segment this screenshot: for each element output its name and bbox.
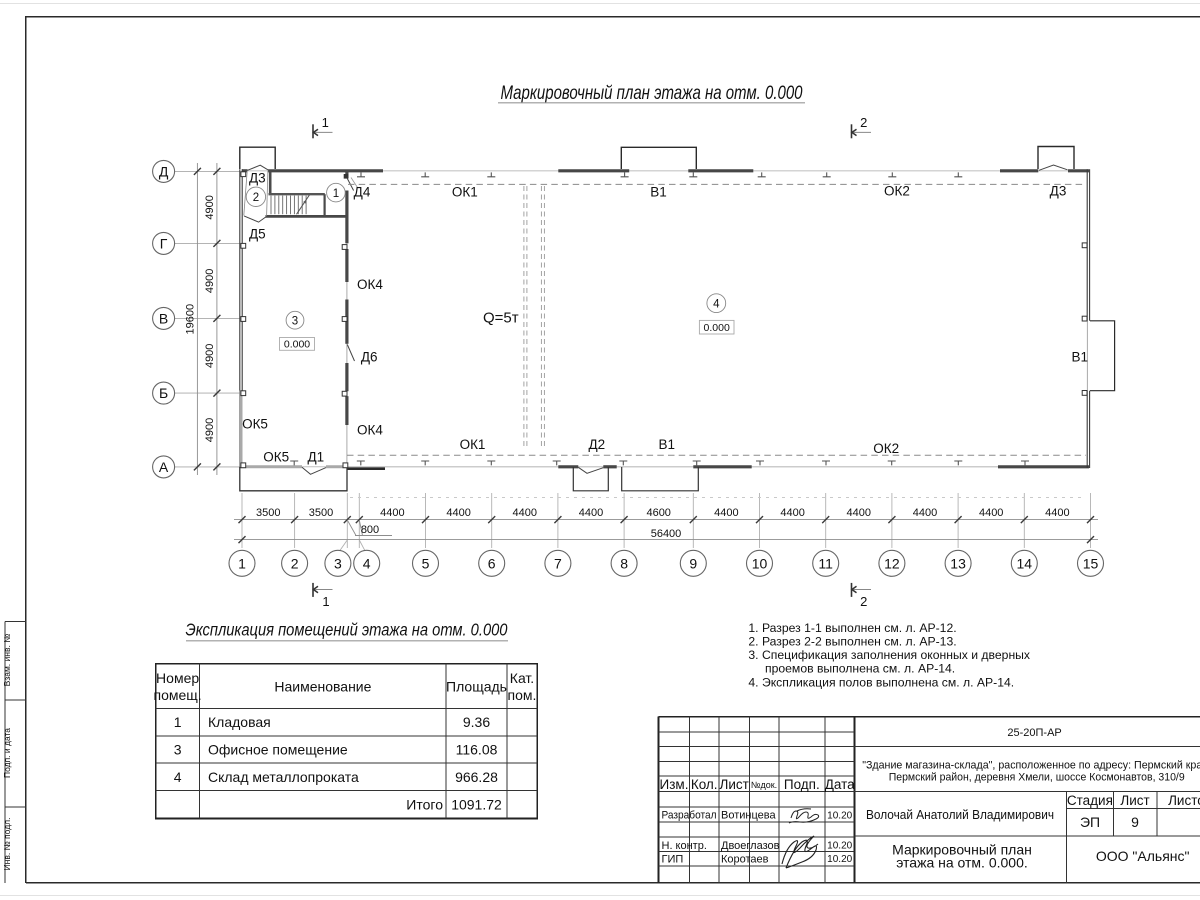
svg-text:1: 1 xyxy=(322,594,329,609)
svg-text:3: 3 xyxy=(174,741,182,757)
svg-text:В1: В1 xyxy=(659,437,676,452)
svg-text:966.28: 966.28 xyxy=(455,769,498,785)
svg-text:проемов выполнена см. л. АР-14: проемов выполнена см. л. АР-14. xyxy=(765,662,955,676)
svg-text:9.36: 9.36 xyxy=(463,714,490,730)
svg-text:6: 6 xyxy=(488,555,496,571)
svg-text:Кол.: Кол. xyxy=(691,777,718,792)
svg-text:2: 2 xyxy=(860,594,867,609)
svg-text:3: 3 xyxy=(292,315,298,327)
svg-text:Н. контр.: Н. контр. xyxy=(662,840,707,852)
svg-text:3500: 3500 xyxy=(256,507,280,519)
svg-text:4: 4 xyxy=(713,298,720,310)
svg-text:Листов: Листов xyxy=(1168,793,1200,808)
svg-text:8: 8 xyxy=(620,555,628,571)
svg-text:2: 2 xyxy=(860,115,867,130)
svg-text:Итого: Итого xyxy=(406,796,443,812)
svg-text:4900: 4900 xyxy=(204,344,216,368)
svg-text:9: 9 xyxy=(1131,814,1139,830)
svg-text:Б: Б xyxy=(159,385,168,401)
svg-text:116.08: 116.08 xyxy=(456,741,498,757)
svg-text:4400: 4400 xyxy=(513,507,537,519)
svg-text:Д1: Д1 xyxy=(307,450,324,465)
svg-text:1: 1 xyxy=(238,555,246,571)
svg-text:9: 9 xyxy=(689,555,697,571)
svg-text:13: 13 xyxy=(950,555,966,571)
svg-text:Номер: Номер xyxy=(156,670,199,686)
svg-text:В1: В1 xyxy=(650,185,667,200)
svg-text:4400: 4400 xyxy=(979,507,1003,519)
svg-text:ОК1: ОК1 xyxy=(460,437,486,452)
svg-text:Д2: Д2 xyxy=(588,437,605,452)
svg-text:ОК4: ОК4 xyxy=(357,277,383,292)
svg-text:2: 2 xyxy=(291,555,299,571)
svg-text:Кладовая: Кладовая xyxy=(208,714,271,730)
svg-text:4900: 4900 xyxy=(204,418,216,442)
svg-text:14: 14 xyxy=(1017,555,1033,571)
svg-text:4600: 4600 xyxy=(646,507,670,519)
svg-text:ООО "Альянс": ООО "Альянс" xyxy=(1096,848,1190,864)
svg-text:1: 1 xyxy=(174,714,182,730)
svg-text:Инв. № подл.: Инв. № подл. xyxy=(2,818,12,871)
svg-text:ОК5: ОК5 xyxy=(263,450,289,465)
svg-text:3500: 3500 xyxy=(309,507,333,519)
svg-text:этажа на отм. 0.000.: этажа на отм. 0.000. xyxy=(896,854,1028,870)
svg-text:Д3: Д3 xyxy=(249,170,266,185)
svg-text:1091.72: 1091.72 xyxy=(451,796,502,812)
svg-text:12: 12 xyxy=(884,555,900,571)
svg-text:Пермский район, деревня Хмели,: Пермский район, деревня Хмели, шоссе Кос… xyxy=(889,772,1185,784)
svg-text:10.20: 10.20 xyxy=(827,841,852,852)
svg-text:Д: Д xyxy=(159,163,169,179)
svg-text:А: А xyxy=(159,459,169,475)
svg-text:Склад металлопроката: Склад металлопроката xyxy=(208,769,359,785)
svg-text:Подп.: Подп. xyxy=(784,777,820,792)
svg-text:4: 4 xyxy=(363,555,371,571)
svg-text:пом.: пом. xyxy=(508,687,537,703)
svg-text:Разработал: Разработал xyxy=(662,810,717,822)
svg-text:4400: 4400 xyxy=(446,507,470,519)
svg-text:ОК4: ОК4 xyxy=(357,423,383,438)
svg-text:4400: 4400 xyxy=(913,507,937,519)
svg-text:Волочай Анатолий Владимирович: Волочай Анатолий Владимирович xyxy=(866,807,1054,822)
svg-text:11: 11 xyxy=(818,555,833,571)
svg-text:800: 800 xyxy=(361,524,379,536)
svg-text:ОК1: ОК1 xyxy=(452,185,478,200)
svg-text:Д4: Д4 xyxy=(354,184,371,199)
svg-text:ГИП: ГИП xyxy=(662,854,684,866)
svg-text:ЭП: ЭП xyxy=(1080,814,1100,830)
svg-text:4: 4 xyxy=(174,769,182,785)
svg-text:Коротаев: Коротаев xyxy=(721,854,769,866)
svg-text:1: 1 xyxy=(322,115,329,130)
svg-text:4400: 4400 xyxy=(780,507,804,519)
svg-text:Стадия: Стадия xyxy=(1067,793,1113,808)
svg-text:Лист: Лист xyxy=(1120,793,1149,808)
svg-text:4900: 4900 xyxy=(204,195,216,219)
svg-text:0.000: 0.000 xyxy=(704,322,730,334)
svg-text:3. Спецификация заполнения око: 3. Спецификация заполнения оконных и две… xyxy=(748,648,1030,662)
svg-text:Наименование: Наименование xyxy=(274,679,371,695)
svg-text:ОК2: ОК2 xyxy=(884,184,910,199)
svg-text:2. Разрез 2-2 выполнен см. л.: 2. Разрез 2-2 выполнен см. л. АР-13. xyxy=(748,634,956,648)
svg-text:Двоеглазов: Двоеглазов xyxy=(721,840,780,852)
svg-text:Д5: Д5 xyxy=(249,226,266,241)
svg-text:Лист: Лист xyxy=(720,777,749,792)
svg-text:4400: 4400 xyxy=(1045,507,1069,519)
svg-text:Экспликация помещений этажа на: Экспликация помещений этажа на отм. 0.00… xyxy=(186,620,508,640)
svg-text:4900: 4900 xyxy=(204,269,216,293)
svg-text:Г: Г xyxy=(160,235,168,251)
svg-text:15: 15 xyxy=(1083,555,1099,571)
svg-text:0.000: 0.000 xyxy=(284,339,310,351)
svg-text:ОК5: ОК5 xyxy=(242,417,268,432)
svg-text:№док.: №док. xyxy=(751,780,777,790)
svg-text:4400: 4400 xyxy=(380,507,404,519)
svg-text:Кат.: Кат. xyxy=(510,670,534,686)
svg-text:Дата: Дата xyxy=(825,777,855,792)
svg-text:3: 3 xyxy=(334,555,342,571)
svg-text:Изм.: Изм. xyxy=(660,777,689,792)
svg-text:4. Экспликация полов выполнена: 4. Экспликация полов выполнена см. л. АР… xyxy=(748,675,1014,689)
svg-text:В: В xyxy=(159,310,168,326)
svg-text:Вотинцева: Вотинцева xyxy=(721,810,776,822)
svg-text:1: 1 xyxy=(333,188,339,200)
svg-text:"Здание магазина-склада", расп: "Здание магазина-склада", расположенное … xyxy=(862,759,1200,771)
svg-text:Подп. и дата: Подп. и дата xyxy=(2,728,12,778)
svg-text:Взам. инв. №: Взам. инв. № xyxy=(2,634,12,687)
svg-text:7: 7 xyxy=(554,555,562,571)
svg-text:10.20: 10.20 xyxy=(827,810,852,821)
svg-text:10: 10 xyxy=(752,555,768,571)
svg-text:10.20: 10.20 xyxy=(827,854,852,865)
svg-text:Площадь: Площадь xyxy=(446,679,507,695)
svg-text:В1: В1 xyxy=(1071,350,1088,365)
svg-text:4400: 4400 xyxy=(847,507,871,519)
svg-text:19600: 19600 xyxy=(184,304,196,335)
svg-text:4400: 4400 xyxy=(579,507,603,519)
svg-text:2: 2 xyxy=(253,192,259,204)
svg-text:ОК2: ОК2 xyxy=(873,441,899,456)
svg-text:1. Разрез 1-1 выполнен см. л.: 1. Разрез 1-1 выполнен см. л. АР-12. xyxy=(748,621,956,635)
svg-text:4400: 4400 xyxy=(714,507,738,519)
svg-text:Д3: Д3 xyxy=(1050,184,1067,199)
svg-text:5: 5 xyxy=(422,555,430,571)
svg-text:Д6: Д6 xyxy=(361,349,378,364)
svg-text:помещ.: помещ. xyxy=(154,687,202,703)
svg-text:25-20П-АР: 25-20П-АР xyxy=(1007,727,1061,739)
svg-text:Q=5т: Q=5т xyxy=(483,310,519,327)
svg-text:56400: 56400 xyxy=(651,528,682,540)
svg-text:Офисное помещение: Офисное помещение xyxy=(208,741,348,757)
svg-text:Маркировочный план этажа на от: Маркировочный план этажа на отм. 0.000 xyxy=(501,83,803,104)
